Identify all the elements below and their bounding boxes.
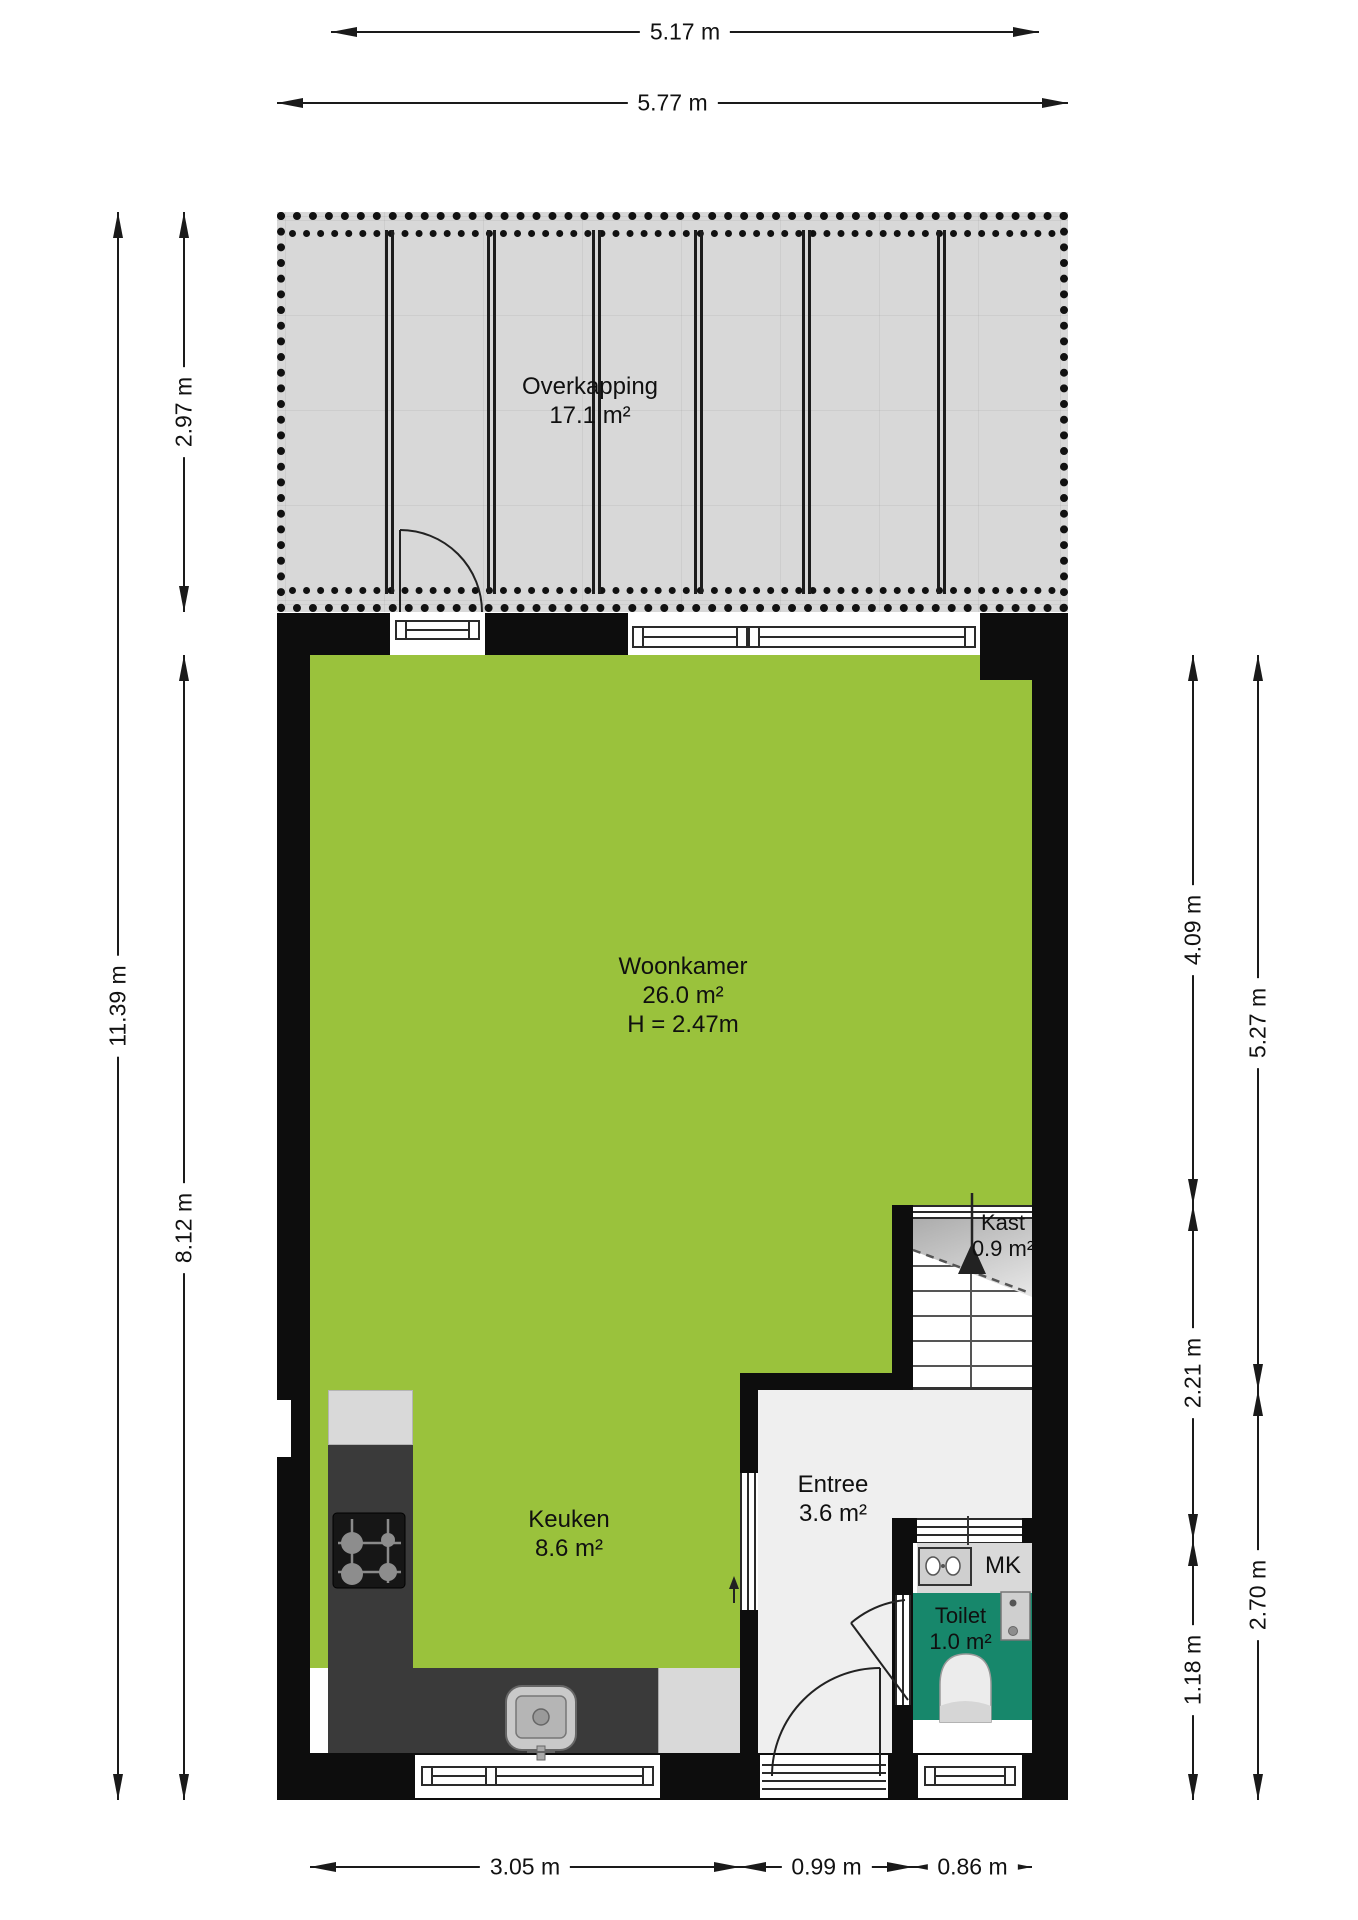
dimension-bottom-right: 0.86 m: [913, 1852, 1032, 1882]
dimension-value: 2.97 m: [169, 367, 200, 457]
wall-woonkamer-entree: [740, 1373, 913, 1390]
dimension-right-inner-top: 4.09 m: [1178, 655, 1208, 1205]
dimension-value: 5.27 m: [1243, 977, 1274, 1067]
front-door-threshold: [762, 1764, 886, 1790]
dimension-top-outer: 5.77 m: [277, 88, 1068, 118]
room-area: 3.6 m²: [733, 1499, 933, 1528]
kast-label: Kast 0.9 m²: [943, 1210, 1063, 1262]
wall-mk-right: [1022, 1518, 1032, 1543]
canopy-beam: [802, 230, 811, 594]
frame-cap: [395, 620, 407, 640]
wall-top-left: [277, 613, 390, 655]
mk-label: MK: [963, 1551, 1043, 1580]
room-area: 8.6 m²: [469, 1534, 669, 1563]
dimension-left-inner-top: 2.97 m: [169, 212, 199, 612]
dimension-right-outer-top: 5.27 m: [1243, 655, 1273, 1390]
dimension-bottom-left: 3.05 m: [310, 1852, 740, 1882]
toilet-floor-strip: [913, 1720, 1032, 1753]
frame-cap: [468, 620, 480, 640]
dimension-value: 8.12 m: [169, 1182, 200, 1272]
dimension-value: 2.70 m: [1243, 1550, 1274, 1640]
dimension-value: 11.39 m: [103, 955, 134, 1056]
dimension-right-outer-bottom: 2.70 m: [1243, 1390, 1273, 1800]
frame-cap: [1004, 1766, 1016, 1786]
dimension-value: 5.77 m: [627, 88, 717, 119]
kitchen-window: [421, 1766, 654, 1786]
dimension-left-inner-bottom: 8.12 m: [169, 655, 199, 1800]
woonkamer-floor: [307, 655, 1032, 1205]
dimension-value: 2.21 m: [1178, 1327, 1209, 1417]
dimension-right-inner-mid: 2.21 m: [1178, 1205, 1208, 1540]
room-name: Kast: [943, 1210, 1063, 1236]
kitchen-counter-bottom: [328, 1668, 658, 1753]
frame-cap: [642, 1766, 654, 1786]
room-name: MK: [963, 1551, 1043, 1580]
room-name: Keuken: [469, 1505, 669, 1534]
room-area: 1.0 m²: [908, 1629, 1013, 1655]
room-name: Woonkamer: [533, 952, 833, 981]
kitchen-appliance-bottom: [658, 1668, 740, 1753]
room-area: 0.9 m²: [943, 1236, 1063, 1262]
wall-toilet-left-mid: [892, 1543, 913, 1595]
dimension-value: 5.17 m: [640, 17, 730, 48]
wall-entree-left-upper: [740, 1390, 758, 1473]
kitchen-appliance: [328, 1390, 413, 1445]
dimension-right-inner-bottom: 1.18 m: [1178, 1540, 1208, 1800]
room-name: Entree: [733, 1470, 933, 1499]
dimension-value: 4.09 m: [1178, 885, 1209, 975]
room-area: 17.1 m²: [440, 401, 740, 430]
wall-entree-left-lower: [740, 1610, 758, 1753]
canopy-beam: [385, 230, 394, 594]
woonkamer-floor-lower: [307, 1205, 892, 1373]
entree-label: Entree 3.6 m²: [733, 1470, 933, 1528]
wall-top-pier: [485, 613, 628, 655]
dimension-top-inner: 5.17 m: [331, 17, 1039, 47]
dimension-value: 0.99 m: [781, 1852, 871, 1883]
dimension-value: 0.86 m: [927, 1852, 1017, 1883]
kitchen-counter-left: [328, 1445, 413, 1668]
wall-recess: [277, 1400, 291, 1457]
wall-left: [277, 613, 310, 1800]
woonkamer-label: Woonkamer 26.0 m² H = 2.47m: [533, 952, 833, 1039]
overkapping-label: Overkapping 17.1 m²: [440, 372, 740, 430]
back-door-frame: [395, 620, 480, 640]
room-area: 26.0 m²: [533, 981, 833, 1010]
dimension-value: 1.18 m: [1178, 1625, 1209, 1715]
frame-cap: [421, 1766, 433, 1786]
dimension-bottom-mid: 0.99 m: [740, 1852, 913, 1882]
keuken-label: Keuken 8.6 m²: [469, 1505, 669, 1563]
wall-stairs-left: [892, 1205, 913, 1390]
dimension-left-outer: 11.39 m: [103, 212, 133, 1800]
canopy-beam: [937, 230, 946, 594]
room-name: Toilet: [908, 1603, 1013, 1629]
wall-toilet-left-bottom: [892, 1705, 913, 1753]
room-name: Overkapping: [440, 372, 740, 401]
toilet-window: [924, 1766, 1016, 1786]
window-divider: [736, 626, 748, 648]
frame-cap: [924, 1766, 936, 1786]
window-divider: [485, 1766, 497, 1786]
toilet-label: Toilet 1.0 m²: [908, 1603, 1013, 1655]
window-divider: [748, 626, 760, 648]
room-ceiling-height: H = 2.47m: [533, 1010, 833, 1039]
frame-cap: [632, 626, 644, 648]
entree-floor-lower: [758, 1518, 892, 1753]
rear-window: [632, 626, 976, 648]
dimension-value: 3.05 m: [480, 1852, 570, 1883]
frame-cap: [964, 626, 976, 648]
floor-plan: Overkapping 17.1 m²: [0, 0, 1358, 1920]
